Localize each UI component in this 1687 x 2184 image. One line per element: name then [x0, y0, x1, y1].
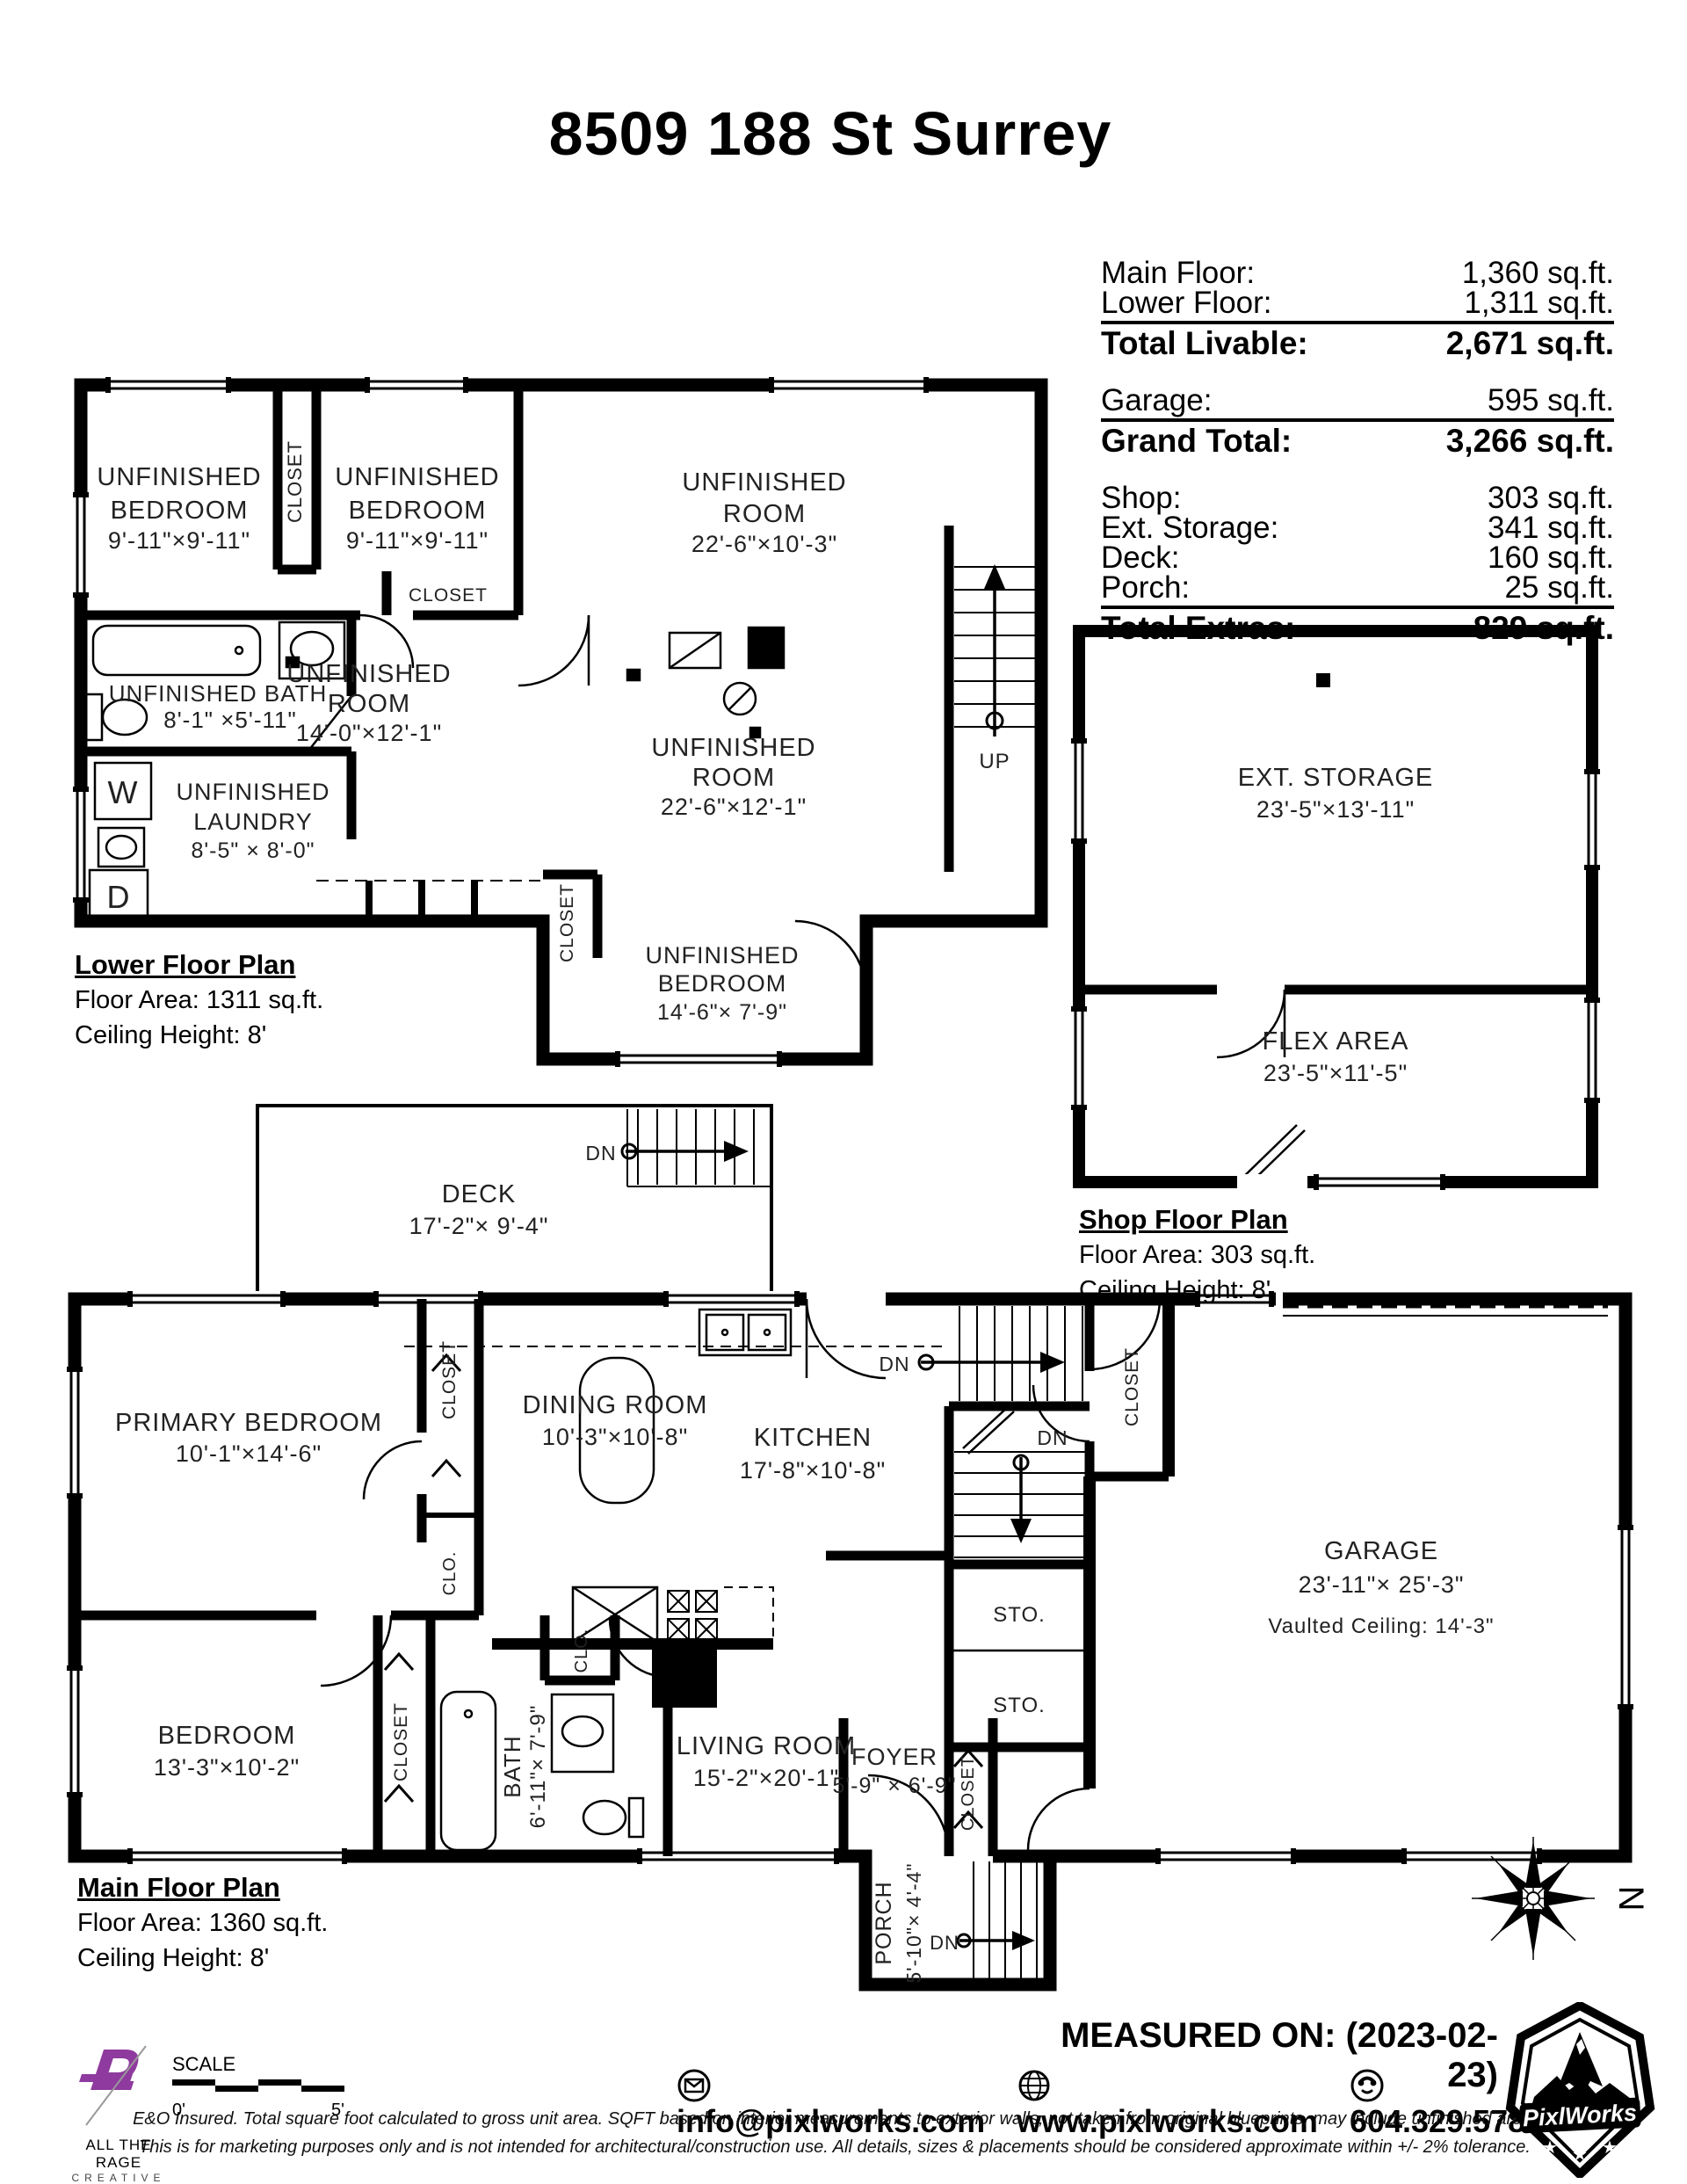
closet-label: CLOSET — [409, 585, 488, 606]
all-the-rage-logo: ALL THE RAGE CREATIVE — [62, 2044, 176, 2184]
room-dims: 17'-8"×10'-8" — [740, 1457, 886, 1484]
svg-text:★: ★ — [1542, 2138, 1558, 2158]
room-label: ROOM — [328, 690, 410, 718]
closet-label: CLOSET — [1122, 1347, 1142, 1426]
kitchen-sink — [699, 1310, 791, 1355]
shop-doors — [1217, 990, 1305, 1188]
room-label: DINING ROOM — [523, 1391, 708, 1419]
dn-label: DN — [930, 1932, 959, 1954]
main-floor-plan: DECK 17'-2"× 9'-4" DN PRIMARY BEDROOM 10… — [67, 1106, 1633, 1984]
kitchen-island-post — [652, 1650, 717, 1708]
floorplan-page: { "title": "8509 188 St Surrey", "colors… — [0, 0, 1687, 2184]
room-label: UNFINISHED — [651, 734, 815, 762]
table-row: Main Floor:1,360 sq.ft. — [1101, 258, 1614, 288]
svg-text:★: ★ — [1602, 2138, 1618, 2158]
room-dims: 8'-1" ×5'-11" — [163, 707, 296, 733]
room-label: ROOM — [692, 764, 775, 792]
shop-post — [1316, 673, 1330, 687]
room-label: UNFINISHED — [97, 463, 261, 491]
room-label: EXT. STORAGE — [1238, 764, 1434, 792]
room-note: Vaulted Ceiling: 14'-3" — [1268, 1614, 1494, 1638]
burners — [668, 1591, 717, 1640]
room-label: UNFINISHED — [286, 660, 451, 688]
room-label: GARAGE — [1324, 1537, 1438, 1565]
room-label: ROOM — [723, 500, 806, 528]
deck-dn-arrow — [622, 1141, 749, 1162]
disclaimer-line-2: This is for marketing purposes only and … — [105, 2137, 1564, 2158]
sto-label: STO. — [993, 1603, 1046, 1627]
closet-label: CLO. — [440, 1551, 460, 1596]
table-rule — [1101, 418, 1614, 422]
atr-subtitle: CREATIVE — [62, 2172, 176, 2184]
room-dims: 23'-5"×11'-5" — [1263, 1060, 1408, 1086]
room-dims: 15'-2"×20'-1" — [693, 1765, 839, 1791]
envelope-icon — [677, 2068, 712, 2103]
room-label: UNFINISHED — [682, 468, 846, 497]
room-label: BEDROOM — [111, 497, 249, 525]
room-label: PRIMARY BEDROOM — [115, 1409, 382, 1437]
closet-label: CLOSET — [959, 1755, 978, 1831]
lower-plan-caption: Lower Floor Plan Floor Area: 1311 sq.ft.… — [75, 947, 323, 1053]
table-row: Lower Floor:1,311 sq.ft. — [1101, 288, 1614, 318]
closet-label: CLOSET — [284, 440, 306, 523]
closet-label: CLOSET — [391, 1702, 411, 1781]
room-label: LIVING ROOM — [677, 1732, 856, 1760]
closet-label: CLOSET — [439, 1340, 460, 1419]
kitchen-fittings — [404, 1310, 945, 1708]
vanity — [552, 1694, 613, 1772]
toilet-tank — [629, 1798, 643, 1837]
dn-arrow-down — [1010, 1455, 1032, 1543]
area-summary-table: Main Floor:1,360 sq.ft. Lower Floor:1,31… — [1101, 258, 1614, 646]
room-label: UNFINISHED — [176, 779, 329, 805]
sto-label: STO. — [993, 1694, 1046, 1717]
room-label: UNFINISHED — [335, 463, 499, 491]
dn-label: DN — [879, 1353, 909, 1375]
lower-cubbies — [316, 881, 540, 918]
room-label: BEDROOM — [158, 1722, 296, 1750]
room-dims: 6'-11"× 7'-9" — [526, 1705, 550, 1829]
room-dims: 10'-3"×10'-8" — [542, 1424, 688, 1450]
table-row: Ext. Storage:341 sq.ft. — [1101, 513, 1614, 543]
room-label: KITCHEN — [754, 1424, 872, 1452]
compass-north-label: N — [1611, 1886, 1650, 1912]
pixlworks-logo: PixlWorks ★ ★ ★ — [1499, 2002, 1662, 2178]
page-title: 8509 188 St Surrey — [0, 98, 1661, 169]
room-label: DECK — [442, 1180, 517, 1208]
room-dims: 9'-11"×9'-11" — [108, 527, 250, 554]
room-label: BEDROOM — [658, 970, 787, 997]
room-dims: 17'-2"× 9'-4" — [409, 1213, 549, 1239]
room-dims: 8'-5" × 8'-0" — [191, 838, 315, 863]
scale-block: SCALE 0' 5' — [172, 2053, 366, 2121]
table-rule — [1101, 606, 1614, 609]
globe-icon — [1017, 2068, 1052, 2103]
room-label: LAUNDRY — [193, 809, 313, 835]
scale-bar — [172, 2078, 344, 2093]
room-label: BEDROOM — [349, 497, 487, 525]
table-row: Porch:25 sq.ft. — [1101, 573, 1614, 603]
room-dims: 9'-11"×9'-11" — [346, 527, 489, 554]
table-row: Deck:160 sq.ft. — [1101, 543, 1614, 573]
table-row-total: Total Livable:2,671 sq.ft. — [1101, 326, 1614, 361]
shop-outer-walls — [1079, 631, 1592, 1182]
dn-label: DN — [1037, 1426, 1068, 1449]
room-dims: 22'-6"×12'-1" — [661, 794, 807, 820]
room-dims: 14'-0"×12'-1" — [296, 720, 442, 746]
room-dims: 14'-6"× 7'-9" — [657, 1000, 787, 1025]
dn-arrow-right — [919, 1352, 1065, 1373]
dryer-letter: D — [107, 879, 131, 915]
dn-arrow-porch — [958, 1931, 1035, 1950]
room-dims: 5'-9" × 6'-9" — [832, 1774, 956, 1798]
main-plan-caption: Main Floor Plan Floor Area: 1360 sq.ft. … — [77, 1870, 328, 1976]
room-label: FOYER — [851, 1744, 938, 1770]
atr-name: ALL THE RAGE — [62, 2137, 176, 2172]
lower-stairs-up — [954, 564, 1036, 736]
shop-plan-caption: Shop Floor Plan Floor Area: 303 sq.ft. C… — [1079, 1202, 1315, 1308]
phone-icon — [1350, 2068, 1385, 2103]
room-label: PORCH — [872, 1881, 896, 1964]
shop-floor-plan: EXT. STORAGE 23'-5"×13'-11" FLEX AREA 23… — [1071, 631, 1600, 1190]
furnace — [749, 628, 784, 668]
room-label: UNFINISHED — [645, 942, 799, 969]
room-dims: 5'-10"× 4'-4" — [902, 1862, 925, 1983]
table-row-total: Total Extras:829 sq.ft. — [1101, 611, 1614, 646]
atr-logo-icon — [70, 2044, 167, 2129]
table-row: Garage:595 sq.ft. — [1101, 386, 1614, 416]
table-row-total: Grand Total:3,266 sq.ft. — [1101, 424, 1614, 459]
room-dims: 23'-11"× 25'-3" — [1299, 1571, 1465, 1598]
room-dims: 22'-6"×10'-3" — [691, 531, 837, 557]
svg-text:★: ★ — [1572, 2145, 1588, 2165]
closet-label: CLO. — [572, 1629, 591, 1673]
room-label: BATH — [499, 1735, 525, 1797]
up-label: UP — [979, 750, 1010, 773]
shop-room-labels: EXT. STORAGE 23'-5"×13'-11" FLEX AREA 23… — [1238, 764, 1434, 1086]
bathtub — [441, 1692, 496, 1850]
washer-letter: W — [108, 774, 139, 810]
scale-end: 5' — [331, 2101, 344, 2121]
table-rule — [1101, 321, 1614, 324]
room-dims: 13'-3"×10'-2" — [154, 1754, 300, 1781]
table-row: Shop:303 sq.ft. — [1101, 483, 1614, 513]
toilet — [583, 1801, 626, 1834]
room-label: FLEX AREA — [1263, 1027, 1409, 1056]
scale-label: SCALE — [172, 2053, 366, 2076]
closet-label: CLOSET — [557, 883, 577, 962]
lower-room-labels: UNFINISHED BEDROOM 9'-11"×9'-11" CLOSET … — [97, 440, 1010, 1025]
room-dims: 23'-5"×13'-11" — [1256, 796, 1415, 823]
room-dims: 10'-1"×14'-6" — [176, 1440, 322, 1467]
dn-label: DN — [585, 1142, 616, 1165]
